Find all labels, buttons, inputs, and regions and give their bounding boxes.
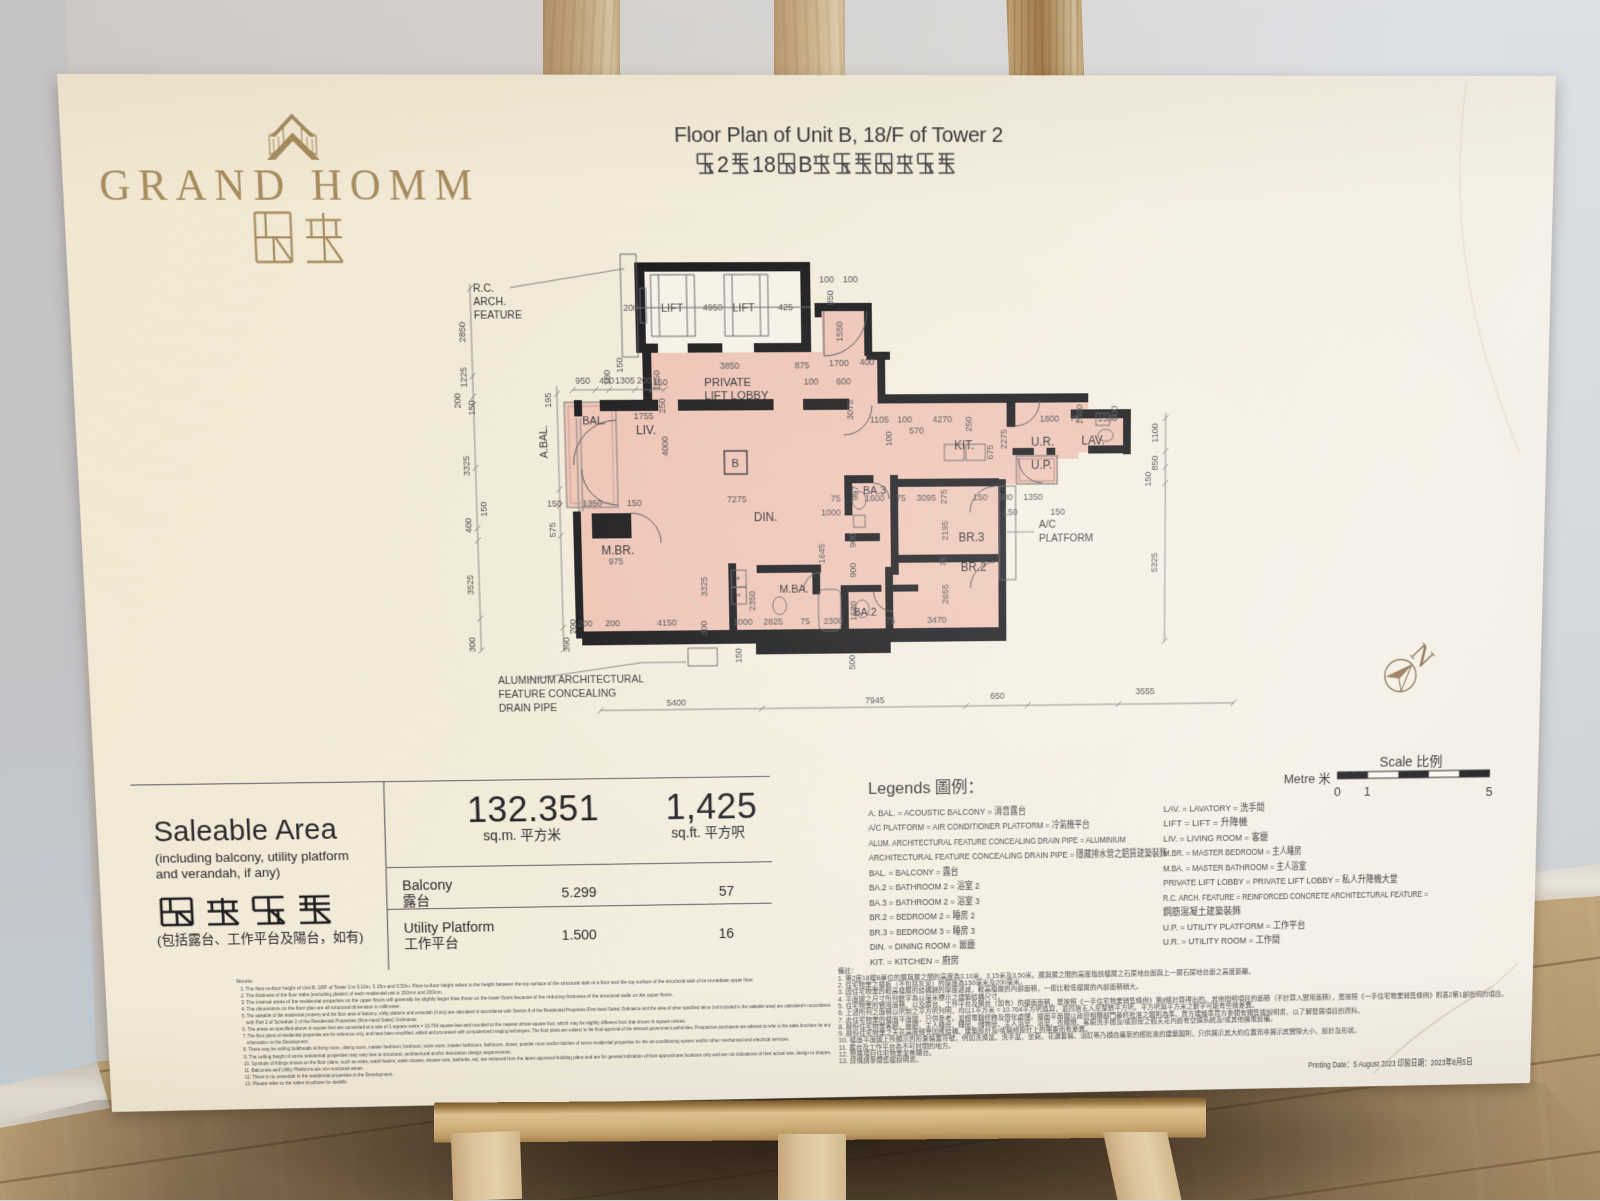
svg-text:150: 150 [653,378,668,389]
svg-text:1645: 1645 [817,544,827,564]
svg-text:900: 900 [848,533,858,548]
svg-text:100: 100 [897,415,912,426]
svg-text:16: 16 [718,926,734,942]
svg-text:12. There is no verandah in th: 12. There is no verandah in the resident… [245,1072,395,1080]
svg-text:1100: 1100 [1150,423,1160,442]
svg-text:BA.2: BA.2 [854,607,877,619]
svg-text:500: 500 [998,493,1013,504]
svg-text:400: 400 [859,357,874,368]
svg-text:BAL. = BALCONY = 露台: BAL. = BALCONY = 露台 [869,866,959,879]
svg-text:875: 875 [795,361,810,372]
svg-text:LIV. = LIVING ROOM = 客廳: LIV. = LIVING ROOM = 客廳 [1163,831,1268,844]
svg-text:10. Symbols of fittings shown: 10. Symbols of fittings shown on the flo… [244,1050,832,1067]
svg-text:4000: 4000 [660,436,671,456]
svg-text:11. Balconies and Utility Plat: 11. Balconies and Utility Platforms are … [244,1066,364,1074]
svg-text:sq.m. 平方米: sq.m. 平方米 [483,827,561,844]
svg-text:3850: 3850 [720,361,740,372]
svg-text:100: 100 [884,431,894,446]
svg-text:ARCHITECTURAL FEATURE CONCEALI: ARCHITECTURAL FEATURE CONCEALING DRAIN P… [869,847,1167,863]
svg-text:BA.2 = BATHROOM 2 = 浴室 2: BA.2 = BATHROOM 2 = 浴室 2 [869,880,980,894]
svg-text:A. BAL. = ACOUSTIC BALCONY = 消: A. BAL. = ACOUSTIC BALCONY = 消音露台 [868,805,1026,819]
svg-text:M.BR. = MASTER BEDROOM = 主人睡房: M.BR. = MASTER BEDROOM = 主人睡房 [1163,845,1301,859]
svg-text:2655: 2655 [941,584,951,604]
svg-text:A/C: A/C [1039,519,1056,530]
svg-text:A/C PLATFORM = AIR CONDITIONER: A/C PLATFORM = AIR CONDITIONER PLATFORM … [868,819,1089,834]
svg-text:0: 0 [1334,785,1341,799]
svg-text:6. 上述所列之面積以呎制之平方呎列明，均以1平方米 = 1: 6. 上述所列之面積以呎制之平方呎列明，均以1平方米 = 10.764平方呎換算… [838,1001,1258,1017]
svg-text:U.P.: U.P. [1031,458,1052,471]
svg-text:195: 195 [543,393,554,408]
svg-text:and verandah, if any): and verandah, if any) [155,865,280,882]
svg-text:M.BA.: M.BA. [779,584,808,596]
svg-text:BR.3 = BEDROOM 3 = 睡房 3: BR.3 = BEDROOM 3 = 睡房 3 [870,925,976,939]
svg-text:75: 75 [800,617,810,627]
svg-text:A.BAL.: A.BAL. [538,425,550,458]
svg-text:1755: 1755 [634,411,654,422]
svg-text:ALUM. ARCHITECTURAL FEATURE CO: ALUM. ARCHITECTURAL FEATURE CONCEALING D… [869,835,1126,849]
svg-text:5. 住宅物業的實用面積、以及露台、工作平台及陽台（如有）的: 5. 住宅物業的實用面積、以及露台、工作平台及陽台（如有）的樓面面積，是按照《一… [838,990,1508,1010]
svg-text:600: 600 [836,377,851,388]
svg-text:950: 950 [575,376,590,387]
svg-text:2. 住宅物業之樓板（不包括灰泥）的厚度為150毫米及200: 2. 住宅物業之樓板（不包括灰泥）的厚度為150毫米及200毫米。 [838,978,1026,990]
svg-text:Balcony: Balcony [402,877,453,893]
svg-text:information on the Development: information on the Development. [247,1040,310,1047]
svg-text:1700: 1700 [829,358,849,369]
svg-text:3525: 3525 [466,575,477,595]
svg-text:M.BR.: M.BR. [601,544,634,558]
svg-text:850: 850 [826,290,837,305]
svg-text:Utility Platform: Utility Platform [403,919,494,936]
svg-text:Printing Date：5 August 2023 印製: Printing Date：5 August 2023 印製日期：2023年8月… [1308,1056,1473,1071]
svg-text:3325: 3325 [462,456,473,476]
svg-text:5: 5 [1485,785,1492,799]
svg-text:3. The internal areas of the r: 3. The internal areas of the residential… [241,992,673,1005]
svg-text:300: 300 [699,621,709,636]
svg-text:2300: 2300 [824,616,844,627]
svg-text:R.C.: R.C. [473,283,494,295]
svg-text:DIN. = DINING ROOM = 飯廳: DIN. = DINING ROOM = 飯廳 [870,939,975,953]
svg-text:3. 因住宅物業的較高樓層的結構牆的厚度遞減，較高樓層的內部: 3. 因住宅物業的較高樓層的結構牆的厚度遞減，較高樓層的內部面積，一般比較低樓層… [838,983,1142,997]
svg-text:U.P. = UTILITY PLATFORM = 工作平台: U.P. = UTILITY PLATFORM = 工作平台 [1163,919,1306,933]
svg-text:(including balcony, utility pl: (including balcony, utility platform [155,849,350,867]
svg-text:100: 100 [843,275,858,286]
svg-text:BA.3 = BATHROOM 2 = 浴室 3: BA.3 = BATHROOM 2 = 浴室 3 [869,895,980,909]
svg-text:U.R. = UTILITY ROOM = 工作間: U.R. = UTILITY ROOM = 工作間 [1163,935,1280,948]
svg-text:150: 150 [734,648,744,663]
svg-text:Saleable Area: Saleable Area [153,813,338,848]
svg-text:6. The areas as specified abov: 6. The areas as specified above in squar… [242,1019,686,1033]
svg-text:300: 300 [468,637,479,652]
svg-text:Floor Plan of Unit B, 18/F of: Floor Plan of Unit B, 18/F of Tower 2 [674,122,1003,147]
svg-text:13. Please refer to the sales: 13. Please refer to the sales brochure f… [245,1080,348,1087]
svg-text:150: 150 [1003,507,1018,518]
svg-text:1.500: 1.500 [562,927,597,943]
svg-text:13. 詳情請參閱售樓說明書。: 13. 詳情請參閱售樓說明書。 [839,1056,923,1066]
svg-text:1350: 1350 [1023,492,1042,503]
svg-text:BR.2: BR.2 [961,561,987,574]
svg-text:5.299: 5.299 [561,885,596,901]
svg-text:1550: 1550 [835,321,846,341]
svg-text:FEATURE: FEATURE [474,310,523,322]
svg-text:2350: 2350 [748,591,759,611]
svg-text:9. 部份住宅物業之天花高度經會因應結構、建築設計及/或裝修: 9. 部份住宅物業之天花高度經會因應結構、建築設計及/或裝修設計上的需要而有差異… [838,1025,1091,1038]
svg-text:975: 975 [608,557,623,568]
svg-text:1105: 1105 [870,415,889,426]
svg-text:Legends 圖例：: Legends 圖例： [868,778,984,798]
svg-text:1600: 1600 [865,493,885,504]
svg-text:4150: 4150 [657,618,677,629]
svg-text:100: 100 [602,370,613,385]
svg-text:850: 850 [1150,456,1160,471]
svg-text:1680: 1680 [849,601,859,621]
svg-text:1650: 1650 [652,370,663,390]
svg-text:8. There may be ceiling bulkhe: 8. There may be ceiling bulkheads at liv… [243,1037,789,1053]
svg-text:DRAIN PIPE: DRAIN PIPE [499,703,558,715]
svg-text:275: 275 [939,489,949,504]
svg-text:B: B [798,152,813,177]
svg-text:BAL.: BAL. [582,416,606,428]
svg-text:250: 250 [964,417,974,432]
svg-text:150: 150 [1050,507,1065,518]
svg-text:400: 400 [599,376,614,387]
svg-text:工作平台: 工作平台 [404,935,459,951]
svg-text:N: N [1404,637,1440,673]
svg-text:LIV.: LIV. [636,424,656,438]
svg-text:5. The saleable of the residen: 5. The saleable of the residential prope… [242,1003,831,1019]
svg-text:BR.2 = BEDROOM 2 = 睡房 2: BR.2 = BEDROOM 2 = 睡房 2 [869,910,975,924]
svg-text:2. The thickness of the floor: 2. The thickness of the floor slabs (exc… [241,990,444,999]
svg-text:75: 75 [1070,414,1080,425]
svg-text:150: 150 [1144,472,1154,487]
svg-text:57: 57 [719,884,735,900]
svg-text:12. 發展項目住宅物業並無陽台。: 12. 發展項目住宅物業並無陽台。 [839,1049,936,1059]
svg-text:FEATURE CONCEALING: FEATURE CONCEALING [498,688,616,701]
svg-text:2195: 2195 [940,521,950,541]
svg-text:LAV. = LAVATORY = 洗手間: LAV. = LAVATORY = 洗手間 [1164,801,1265,814]
svg-text:75: 75 [886,616,896,626]
svg-text:18: 18 [752,152,776,177]
svg-text:PLATFORM: PLATFORM [1039,533,1093,545]
svg-text:LIFT LOBBY: LIFT LOBBY [704,388,768,402]
svg-text:200: 200 [637,376,652,387]
svg-text:1000: 1000 [733,617,753,628]
svg-text:100: 100 [819,275,834,286]
svg-text:150: 150 [479,502,490,517]
svg-text:2825: 2825 [763,617,783,628]
svg-text:ALUMINIUM ARCHITECTURAL: ALUMINIUM ARCHITECTURAL [498,674,644,687]
svg-text:GRAND HOMM: GRAND HOMM [98,161,481,210]
svg-text:LIFT: LIFT [732,303,755,315]
svg-text:150: 150 [615,358,626,373]
svg-text:(包括露台、工作平台及陽台，如有): (包括露台、工作平台及陽台，如有) [157,930,364,948]
svg-text:575: 575 [548,522,559,537]
svg-text:75: 75 [939,556,949,566]
svg-text:LIFT = LIFT = 升降機: LIFT = LIFT = 升降機 [1163,817,1247,830]
svg-text:Metre 米: Metre 米 [1284,772,1331,786]
svg-text:1500: 1500 [1075,404,1085,424]
svg-text:1350: 1350 [582,499,602,510]
svg-text:907: 907 [851,486,861,501]
svg-text:3095: 3095 [917,493,937,504]
svg-text:390: 390 [562,637,573,652]
svg-text:sq.ft. 平方呎: sq.ft. 平方呎 [671,825,745,842]
svg-text:露台: 露台 [402,893,430,909]
svg-text:11. 露台及工作平台為不可封閉的地方。: 11. 露台及工作平台為不可封閉的地方。 [839,1041,955,1051]
svg-text:DIN.: DIN. [754,510,778,524]
svg-text:4. 平面圖之尺寸所列數字為以毫米標示之建築結構尺寸。: 4. 平面圖之尺寸所列數字為以毫米標示之建築結構尺寸。 [838,992,1004,1003]
svg-text:1225: 1225 [459,367,470,388]
svg-text:9. The ceiling height of some: 9. The ceiling height of some residentia… [244,1050,512,1061]
svg-text:U.R.: U.R. [1031,435,1054,449]
svg-text:5400: 5400 [667,698,687,709]
svg-text:900: 900 [849,563,859,578]
svg-text:200: 200 [578,619,593,630]
svg-text:250: 250 [657,398,668,413]
svg-text:7. The floor plans of resident: 7. The floor plans of residential proper… [243,1023,831,1040]
svg-text:1800: 1800 [1040,414,1059,425]
svg-text:2850: 2850 [457,322,468,343]
svg-text:Remarks:: Remarks: [236,980,253,986]
svg-text:4950: 4950 [703,303,723,314]
svg-text:KIT.: KIT. [954,439,974,453]
svg-text:1,425: 1,425 [665,787,758,828]
svg-text:BR.3: BR.3 [959,531,985,544]
svg-text:4270: 4270 [933,415,953,426]
svg-text:KIT. = KITCHEN = 廚房: KIT. = KITCHEN = 廚房 [870,954,959,967]
svg-text:200: 200 [453,393,464,408]
svg-text:3075: 3075 [846,400,856,420]
svg-text:100: 100 [1110,406,1120,421]
svg-text:3325: 3325 [700,576,711,596]
svg-text:150: 150 [547,499,562,510]
svg-text:400: 400 [464,518,475,533]
svg-text:425: 425 [778,302,793,313]
svg-text:R.C. ARCH. FEATURE = REINFORCE: R.C. ARCH. FEATURE = REINFORCED CONCRETE… [1163,889,1428,903]
svg-text:ARCH.: ARCH. [473,296,506,308]
svg-text:PRIVATE LIFT LOBBY = PRIVATE L: PRIVATE LIFT LOBBY = PRIVATE LIFT LOBBY … [1163,873,1398,889]
svg-text:1. The floor-to-floor height o: 1. The floor-to-floor height of Unit B, … [240,977,754,992]
svg-text:200: 200 [568,619,579,634]
svg-text:500: 500 [848,655,858,670]
svg-text:3470: 3470 [927,615,946,626]
svg-text:7945: 7945 [865,696,884,706]
svg-text:B: B [731,456,739,469]
svg-text:650: 650 [990,691,1004,701]
svg-text:75: 75 [896,493,906,504]
svg-text:8. 部份住宅物業客廳、飯廳、主人睡房、睡房、儲物房、主人浴: 8. 部份住宅物業客廳、飯廳、主人睡房、睡房、儲物房、主人浴室、浴室、衣帽間、客… [838,1015,1276,1031]
svg-text:10. 樓面平面圖上所顯示的形象裝置符號，例如洗滌盆、洗手盆: 10. 樓面平面圖上所顯示的形象裝置符號，例如洗滌盆、洗手盆、坐廁、花灑套裝、浴… [839,1027,1361,1045]
svg-text:150: 150 [467,400,478,415]
svg-text:2: 2 [717,152,729,177]
svg-text:75: 75 [831,494,841,505]
svg-text:200: 200 [605,619,620,630]
svg-text:3555: 3555 [1136,687,1155,697]
svg-text:100: 100 [804,377,819,388]
svg-text:1305: 1305 [615,376,635,387]
svg-text:675: 675 [986,445,996,460]
svg-text:132.351: 132.351 [467,789,600,831]
svg-text:4. The dimensions on the floor: 4. The dimensions on the floor plan are … [241,1004,401,1012]
svg-text:with Part 2 of Schedule 2 of t: with Part 2 of Schedule 2 of the Residen… [245,1017,418,1026]
svg-text:PRIVATE: PRIVATE [704,375,751,389]
svg-text:200: 200 [623,303,638,314]
svg-text:7. 此住宅物業的樓面平面圖，只供參考。並經電腦修飾及簡化處: 7. 此住宅物業的樓面平面圖，只供參考。並經電腦修飾及簡化處理。樓面平面圖以政府… [838,1006,1364,1024]
svg-text:鋼筋混凝土建築裝飾: 鋼筋混凝土建築裝飾 [1163,905,1241,918]
svg-text:7275: 7275 [727,495,747,506]
svg-text:5325: 5325 [1150,553,1160,573]
svg-text:1: 1 [1364,785,1371,799]
svg-text:150: 150 [627,498,642,509]
svg-text:1000: 1000 [821,508,841,519]
svg-text:M.BA. = MASTER BATHROOM = 主人浴室: M.BA. = MASTER BATHROOM = 主人浴室 [1163,860,1306,874]
svg-text:570: 570 [909,426,924,437]
svg-text:1. 第2座18樓B單位的層與層之間的高度為3.10米、3.: 1. 第2座18樓B單位的層與層之間的高度為3.10米、3.15米及3.50米。… [838,967,1255,983]
svg-text:1500: 1500 [1098,414,1117,425]
svg-text:BA.3: BA.3 [863,485,886,497]
svg-text:150: 150 [973,493,988,504]
svg-text:LAV.: LAV. [1081,434,1104,447]
svg-text:LIFT: LIFT [661,303,684,315]
svg-text:備註：: 備註： [838,967,858,975]
svg-text:2275: 2275 [999,429,1009,449]
svg-text:Scale 比例: Scale 比例 [1380,754,1443,770]
